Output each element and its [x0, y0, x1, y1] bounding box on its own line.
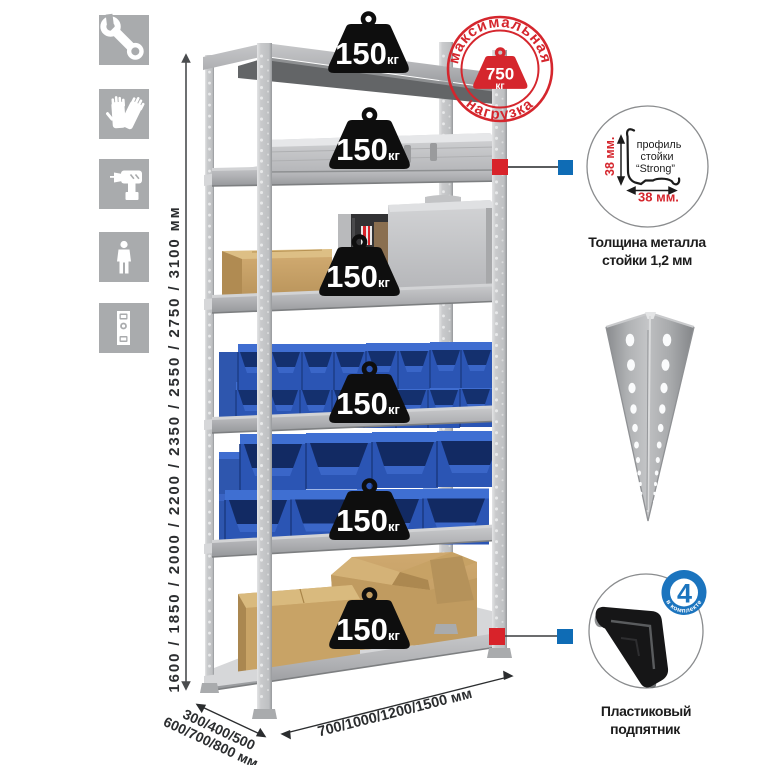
svg-text:“Strong”: “Strong” — [636, 163, 675, 175]
svg-text:Толщина металла: Толщина металла — [588, 234, 706, 250]
svg-text:стойки 1,2 мм: стойки 1,2 мм — [602, 252, 692, 268]
svg-text:4: 4 — [677, 579, 692, 609]
svg-text:38 мм.: 38 мм. — [638, 190, 679, 205]
svg-text:подпятник: подпятник — [610, 721, 681, 737]
svg-text:стойки: стойки — [640, 151, 673, 163]
svg-text:38 мм.: 38 мм. — [603, 137, 617, 176]
svg-text:профиль: профиль — [637, 139, 682, 151]
svg-text:кг: кг — [495, 81, 504, 92]
svg-text:1600 / 1850 / 2000 / 2200 / 23: 1600 / 1850 / 2000 / 2200 / 2350 / 2550 … — [166, 205, 183, 692]
svg-text:Пластиковый: Пластиковый — [601, 703, 691, 719]
